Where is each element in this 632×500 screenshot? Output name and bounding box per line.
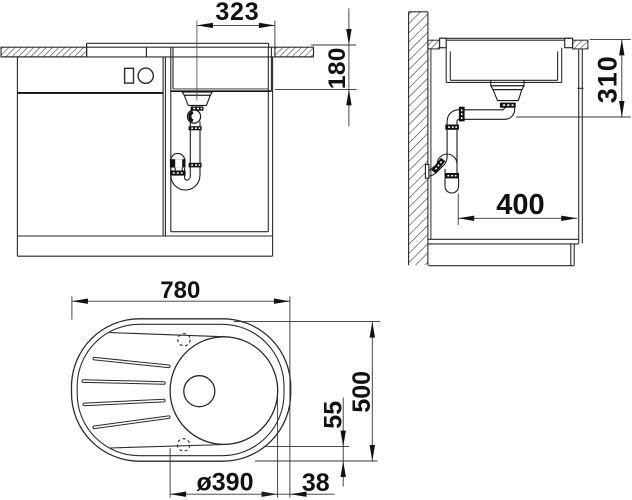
svg-text:ø390: ø390 <box>197 469 254 497</box>
svg-text:400: 400 <box>496 189 544 221</box>
svg-text:180: 180 <box>324 47 351 89</box>
svg-text:323: 323 <box>215 0 259 26</box>
svg-text:310: 310 <box>593 55 623 103</box>
svg-text:780: 780 <box>160 277 200 304</box>
